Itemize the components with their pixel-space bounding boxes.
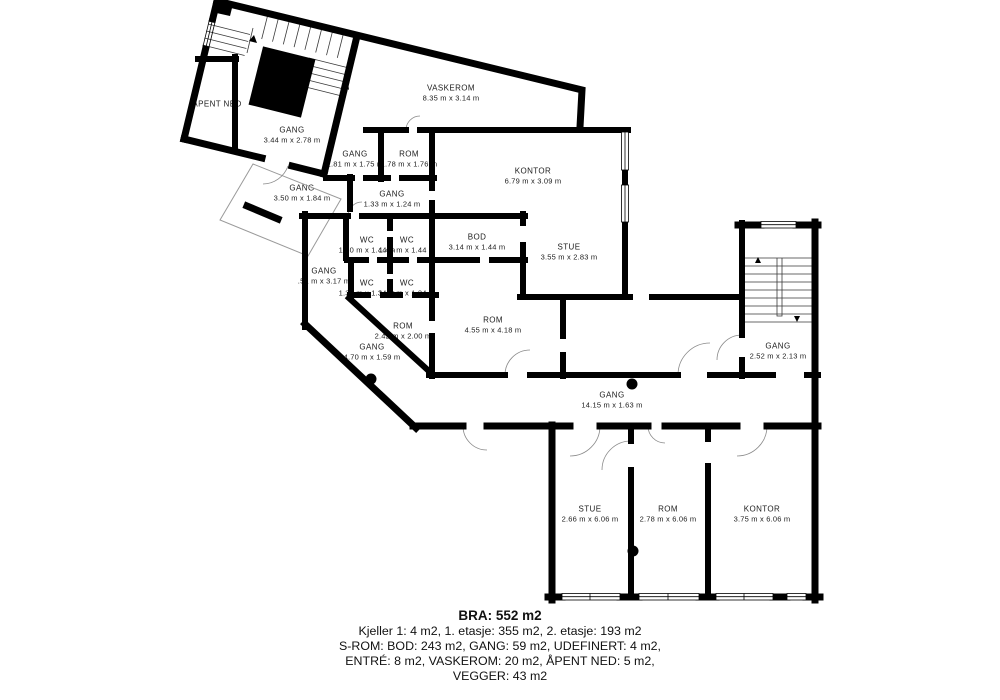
room-label-wc-4: WC 1.46 m x 1.34 m bbox=[379, 279, 436, 298]
floorplan-drawing bbox=[0, 0, 1000, 700]
room-label-gang-181: GANG 1.81 m x 1.75 m bbox=[327, 150, 384, 169]
stairs-icon-upper bbox=[203, 14, 349, 96]
room-label-gang-350: GANG 3.50 m x 1.84 m bbox=[274, 184, 331, 203]
area-summary: BRA: 552 m2 Kjeller 1: 4 m2, 1. etasje: … bbox=[0, 608, 1000, 684]
room-label-rom-278: ROM 2.78 m x 6.06 m bbox=[640, 505, 697, 524]
bra-total: BRA: 552 m2 bbox=[0, 608, 1000, 624]
room-label-apent-ned: ÅPENT NED bbox=[192, 99, 241, 109]
windows bbox=[203, 18, 806, 600]
stairs-icon-right bbox=[745, 258, 812, 322]
room-label-rom-242: ROM 2.42 m x 2.00 m bbox=[375, 322, 432, 341]
open-area-outline bbox=[220, 164, 341, 256]
floorplan: ÅPENT NED GANG 3.44 m x 2.78 m VASKEROM … bbox=[0, 0, 1000, 700]
room-label-vaskerom: VASKEROM 8.35 m x 3.14 m bbox=[423, 84, 480, 103]
room-label-gang-133: GANG 1.33 m x 1.24 m bbox=[364, 190, 421, 209]
room-label-gang-1415: GANG 14.15 m x 1.63 m bbox=[581, 391, 642, 410]
room-label-gang-344: GANG 3.44 m x 2.78 m bbox=[264, 126, 321, 145]
summary-line: Kjeller 1: 4 m2, 1. etasje: 355 m2, 2. e… bbox=[0, 624, 1000, 639]
room-label-gang-470: GANG 4.70 m x 1.59 m bbox=[344, 343, 401, 362]
window-left-slanted bbox=[203, 18, 216, 49]
wall-cap bbox=[212, 0, 233, 16]
room-label-stue-266: STUE 2.66 m x 6.06 m bbox=[562, 505, 619, 524]
room-label-gang-252: GANG 2.52 m x 2.13 m bbox=[750, 342, 807, 361]
walls-outer bbox=[184, 1, 820, 600]
summary-line: S-ROM: BOD: 243 m2, GANG: 59 m2, UDEFINE… bbox=[0, 639, 1000, 654]
summary-line: ENTRÉ: 8 m2, VASKEROM: 20 m2, ÅPENT NED:… bbox=[0, 654, 1000, 669]
stairs-arrows-right bbox=[755, 257, 800, 322]
stairs-arrows-upper bbox=[249, 35, 349, 90]
room-label-kontor-375: KONTOR 3.75 m x 6.06 m bbox=[734, 505, 791, 524]
summary-line: VEGGER: 43 m2 bbox=[0, 669, 1000, 684]
room-label-wc-2: WC 1.46 m x 1.44 m bbox=[379, 236, 436, 255]
shaft-square bbox=[249, 46, 316, 117]
room-label-bod: BOD 3.14 m x 1.44 m bbox=[449, 233, 506, 252]
room-label-rom-178: ROM 1.78 m x 1.76 m bbox=[381, 150, 438, 169]
room-label-rom-455: ROM 4.55 m x 4.18 m bbox=[465, 316, 522, 335]
room-label-stue-355: STUE 3.55 m x 2.83 m bbox=[541, 243, 598, 262]
room-label-kontor-679: KONTOR 6.79 m x 3.09 m bbox=[505, 167, 562, 186]
